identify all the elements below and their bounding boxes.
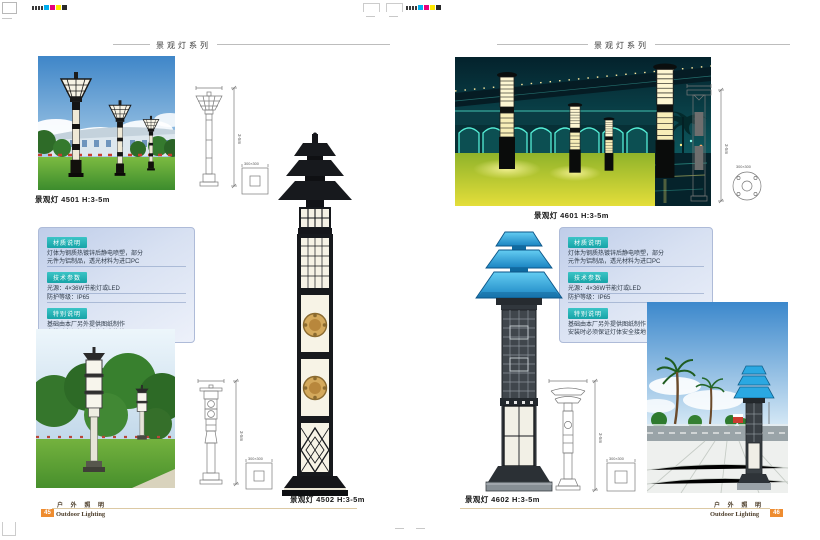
crop-mark-icon bbox=[2, 522, 16, 536]
footer-title-cn: 户 外 照 明 bbox=[714, 500, 764, 509]
material-badge: 材质说明 bbox=[47, 237, 87, 248]
footer-title-en: Outdoor Lighting bbox=[710, 511, 759, 518]
material-text: 元件为铝制品，透光材料为进口PC bbox=[47, 258, 186, 267]
special-badge: 特别说明 bbox=[568, 308, 608, 319]
left-page-title: 景观灯系列 bbox=[150, 40, 217, 51]
cmyk-color-bar-icon bbox=[32, 5, 67, 10]
catalog-spread: 景观灯系列 bbox=[0, 0, 820, 540]
registration-dash bbox=[366, 16, 375, 17]
svg-text:3-5m: 3-5m bbox=[239, 431, 244, 442]
registration-dash bbox=[395, 528, 404, 529]
svg-text:300×300: 300×300 bbox=[244, 162, 259, 166]
svg-text:300×300: 300×300 bbox=[736, 165, 751, 169]
svg-text:3-5m: 3-5m bbox=[237, 134, 242, 145]
footer-title-en: Outdoor Lighting bbox=[56, 511, 105, 518]
material-badge: 材质说明 bbox=[568, 237, 608, 248]
product-label-4601: 景观灯 4601 H:3-5m bbox=[534, 210, 609, 221]
material-text: 灯体为钢质热镀锌后静电喷塑，部分 bbox=[47, 250, 186, 258]
registration-dash bbox=[2, 18, 12, 19]
product-label-4602: 景观灯 4602 H:3-5m bbox=[465, 494, 540, 505]
photo-4501-installation bbox=[38, 56, 175, 190]
special-text: 基础由本厂另外提供图纸制作 bbox=[47, 321, 186, 329]
registration-dash bbox=[416, 528, 425, 529]
dimension-drawing-4501: 3-5m 300×300 bbox=[188, 84, 274, 203]
material-text: 灯体为钢质热镀锌后静电喷塑，部分 bbox=[568, 250, 704, 258]
svg-text:3-5m: 3-5m bbox=[724, 144, 729, 155]
page-number-badge: 46 bbox=[770, 509, 783, 517]
cmyk-color-bar-icon bbox=[406, 5, 441, 10]
dimension-drawing-4601: 3-5m 300×300 bbox=[684, 82, 770, 215]
product-label-4501: 景观灯 4501 H:3-5m bbox=[35, 194, 110, 205]
product-label-4502: 景观灯 4502 H:3-5m bbox=[290, 494, 365, 505]
dimension-drawing-4602: 3-5m 300×300 bbox=[545, 377, 643, 502]
footer-title-cn: 户 外 照 明 bbox=[57, 500, 107, 509]
svg-text:300×300: 300×300 bbox=[609, 457, 624, 461]
tech-badge: 技术参数 bbox=[47, 272, 87, 283]
spec-infobox-left: 材质说明 灯体为钢质热镀锌后静电喷塑，部分 元件为铝制品，透光材料为进口PC 技… bbox=[38, 227, 195, 343]
lamp-illustration-4502 bbox=[274, 132, 356, 501]
page-number-badge: 45 bbox=[41, 509, 54, 517]
crop-mark-icon bbox=[386, 3, 403, 12]
material-text: 元件为铝制品，透光材料为进口PC bbox=[568, 258, 704, 267]
registration-dash bbox=[389, 16, 398, 17]
svg-text:300×300: 300×300 bbox=[248, 457, 263, 461]
photo-4602-installation bbox=[647, 302, 788, 493]
photo-4601-installation bbox=[455, 57, 711, 206]
tech-text: 光源：4×36W节能灯或LED bbox=[568, 285, 704, 294]
right-page-title: 景观灯系列 bbox=[588, 40, 655, 51]
special-badge: 特别说明 bbox=[47, 308, 87, 319]
crop-mark-icon bbox=[363, 3, 380, 12]
dimension-drawing-4502: 3-5m 300×300 bbox=[188, 377, 278, 504]
svg-text:3-5m: 3-5m bbox=[598, 433, 603, 444]
tech-text: 防护等级：IP65 bbox=[47, 294, 186, 303]
registration-mark-icon bbox=[2, 2, 17, 14]
photo-4502-installation bbox=[36, 329, 175, 488]
tech-text: 光源：4×36W节能灯或LED bbox=[47, 285, 186, 294]
tech-badge: 技术参数 bbox=[568, 272, 608, 283]
